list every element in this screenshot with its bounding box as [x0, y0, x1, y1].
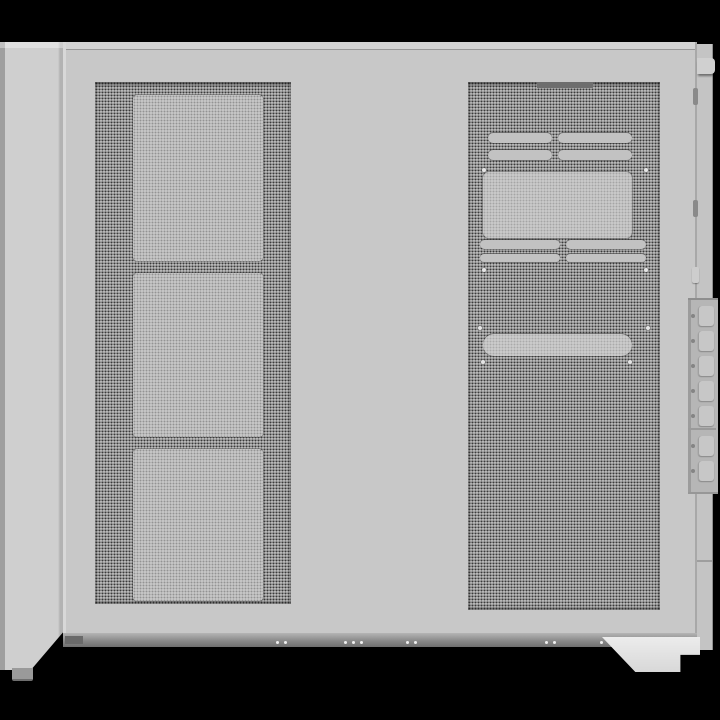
right-mesh-panel [468, 82, 660, 610]
bottom-screw-dot [360, 641, 363, 644]
vent-slot [566, 240, 646, 249]
front-left-foot [12, 668, 33, 681]
bottom-screw-dot [344, 641, 347, 644]
vent-slot [480, 254, 560, 262]
panel-edge-highlight [63, 42, 66, 633]
pci-slot-cover [698, 381, 714, 401]
pci-slot-cover [698, 436, 714, 456]
bracket-bar [483, 334, 632, 356]
top-panel-lip [63, 42, 695, 50]
bottom-screw-dot [414, 641, 417, 644]
bracket-screw-dot [644, 268, 648, 272]
pci-slot-cover [698, 356, 714, 376]
bottom-screw-dot [553, 641, 556, 644]
fan-filter-cutout [133, 95, 263, 261]
fan-filter-cutout [133, 449, 263, 601]
vent-slot [488, 150, 552, 160]
mesh-top-dark-bar [537, 82, 593, 88]
bottom-frame-dark-block [65, 636, 83, 644]
pci-slot-block [688, 298, 718, 494]
front-panel-strip [0, 42, 63, 670]
rear-right-foot [602, 637, 700, 672]
rear-top-tab [697, 58, 715, 74]
vent-slot [480, 240, 560, 249]
front-panel-top-sheen [0, 42, 63, 48]
vent-slot [488, 133, 552, 143]
bracket-screw-dot [478, 326, 482, 330]
pci-slot-cover [698, 406, 714, 426]
bottom-screw-dot [284, 641, 287, 644]
fan-filter-cutout [133, 273, 263, 437]
rear-edge-vent [693, 88, 698, 105]
bracket-screw-dot [628, 360, 632, 364]
pci-slot-cover [698, 461, 714, 481]
bracket-screw-dot [644, 168, 648, 172]
side-panel [63, 42, 697, 633]
bracket-screw-dot [481, 360, 485, 364]
bottom-frame [63, 633, 697, 647]
left-mesh-panel [95, 82, 291, 604]
pci-slot-cover [698, 306, 714, 326]
bottom-screw-dot [406, 641, 409, 644]
bracket-screw-dot [482, 268, 486, 272]
psu-silhouette [483, 172, 632, 238]
bottom-screw-dot [545, 641, 548, 644]
bottom-screw-dot [352, 641, 355, 644]
bottom-screw-dot [276, 641, 279, 644]
rear-strip-seam [697, 560, 712, 562]
product-photo-stage [0, 0, 720, 720]
bracket-screw-dot [482, 168, 486, 172]
pci-slot-cover [698, 331, 714, 351]
bracket-screw-dot [646, 326, 650, 330]
rear-edge-vent [693, 200, 698, 217]
vent-slot [558, 133, 632, 143]
vent-slot [558, 150, 632, 160]
bottom-screw-dot [600, 641, 603, 644]
vent-slot [566, 254, 646, 262]
